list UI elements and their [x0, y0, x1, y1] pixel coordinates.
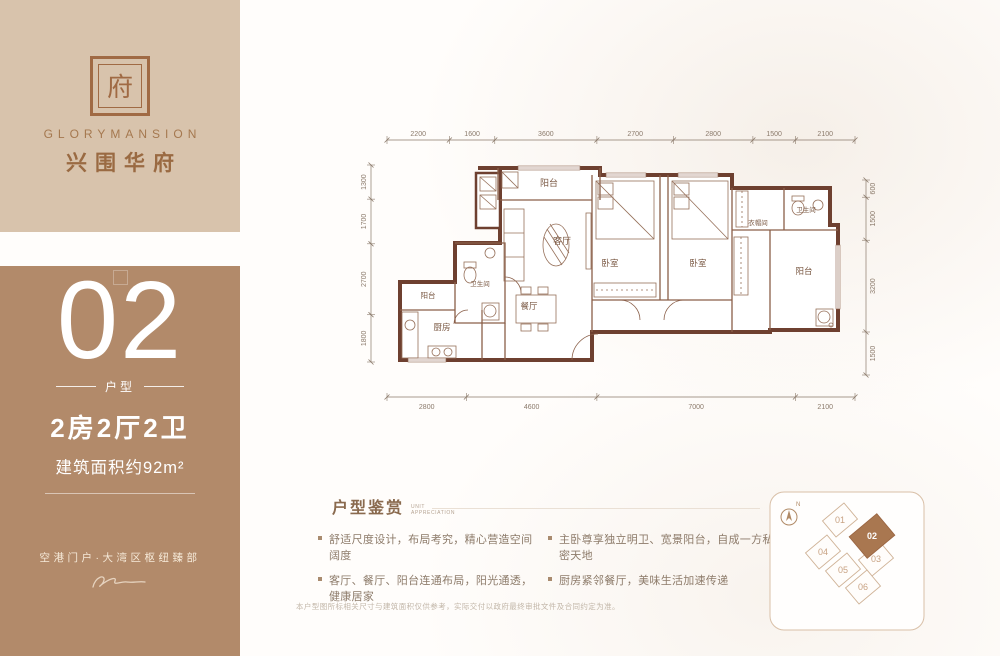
- room-label: 客厅: [553, 235, 571, 246]
- bullet-square-icon: [548, 536, 552, 540]
- brand-seal-inner: 府: [98, 64, 142, 108]
- appreciation-subtitle-line1: UNIT: [411, 504, 425, 510]
- feature-list-left: 舒适尺度设计，布局考究，精心营造空间阔度客厅、餐厅、阳台连通布局，阳光通透，健康…: [318, 531, 543, 604]
- room-label: 卧室: [689, 258, 707, 268]
- unit-panel: 02 户型 2房2厅2卫 建筑面积约92m² 空港门户·大湾区枢纽臻部: [0, 266, 240, 656]
- appreciation-subtitle-en: UNIT APPRECIATION: [411, 504, 455, 517]
- feature-bullet-text: 主卧尊享独立明卫、宽景阳台，自成一方私密天地: [559, 531, 778, 563]
- watermark-seal-icon: [113, 270, 128, 285]
- feature-bullet: 客厅、餐厅、阳台连通布局，阳光通透，健康居家: [318, 572, 543, 604]
- feature-bullet: 舒适尺度设计，布局考究，精心营造空间阔度: [318, 531, 543, 563]
- dimension-label: 600: [870, 183, 877, 195]
- sidebar: 府 GLORYMANSION 兴围华府 02 户型 2房2厅2卫 建筑面积约92…: [0, 0, 240, 656]
- room-label: 卫生间: [470, 279, 490, 288]
- room-label: 卫生间: [796, 205, 816, 214]
- dimension-label: 4600: [524, 404, 540, 411]
- dimension-label: 1500: [870, 346, 877, 362]
- dimension-label: 2700: [627, 131, 643, 138]
- floorplan-diagram: 阳台客厅卧室卧室衣帽间卫生间阳台卫生间阳台厨房餐厅 22001600360027…: [350, 125, 880, 425]
- room-label: 厨房: [433, 322, 450, 332]
- dimension-label: 2700: [361, 271, 368, 287]
- appreciation-title: 户型鉴赏: [332, 494, 404, 518]
- unit-tag-label: 户型: [105, 378, 135, 395]
- room-label: 阳台: [540, 177, 558, 188]
- dimension-label: 2200: [410, 131, 426, 138]
- brochure-page: 府 GLORYMANSION 兴围华府 02 户型 2房2厅2卫 建筑面积约92…: [0, 0, 1000, 656]
- disclaimer-text: 本户型图所标相关尺寸与建筑面积仅供参考，实际交付以政府最终审批文件及合同约定为准…: [296, 601, 620, 612]
- room-label: 阳台: [795, 266, 812, 276]
- feature-bullet-text: 厨房紧邻餐厅，美味生活加速传递: [559, 572, 729, 588]
- compass-north-label: N: [796, 502, 800, 508]
- unit-tag-row: 户型: [0, 378, 240, 395]
- room-label: 卧室: [601, 258, 619, 268]
- floorplan-walls: [400, 166, 840, 362]
- dimension-label: 3200: [870, 278, 877, 294]
- dimension-label: 1500: [766, 131, 782, 138]
- appreciation-header: 户型鉴赏 UNIT APPRECIATION: [332, 494, 455, 518]
- dimension-label: 1600: [464, 131, 480, 138]
- feature-bullet: 厨房紧邻餐厅，美味生活加速传递: [548, 572, 778, 588]
- dimension-label: 3600: [538, 131, 554, 138]
- bullet-square-icon: [548, 577, 552, 581]
- brand-name-cn: 兴围华府: [58, 147, 182, 177]
- keyplan-diagram: N 010304050602: [768, 490, 926, 632]
- keyplan-unit-label: 02: [867, 531, 877, 541]
- room-label: 阳台: [421, 290, 436, 300]
- feature-bullet-text: 舒适尺度设计，布局考究，精心营造空间阔度: [329, 531, 543, 563]
- dimension-label: 2100: [817, 131, 833, 138]
- divider-line: [45, 493, 195, 494]
- dimension-label: 2800: [419, 404, 435, 411]
- room-label: 餐厅: [520, 301, 538, 311]
- bullet-square-icon: [318, 577, 322, 581]
- dimension-label: 1500: [870, 211, 877, 227]
- unit-area-text: 建筑面积约92m²: [0, 454, 240, 478]
- appreciation-rule: [432, 508, 760, 509]
- brand-seal-character: 府: [107, 67, 133, 104]
- dimension-label: 1300: [361, 174, 368, 190]
- unit-layout-text: 2房2厅2卫: [0, 408, 240, 445]
- feature-bullet: 主卧尊享独立明卫、宽景阳台，自成一方私密天地: [548, 531, 778, 563]
- dimension-label: 7000: [688, 404, 704, 411]
- room-label: 衣帽间: [748, 218, 768, 227]
- keyplan-unit-label: 03: [871, 554, 881, 564]
- dimension-label: 2800: [705, 131, 721, 138]
- dimension-label: 1800: [361, 330, 368, 346]
- slogan-text: 空港门户·大湾区枢纽臻部: [0, 550, 240, 565]
- keyplan-unit-label: 04: [818, 547, 828, 557]
- bullet-square-icon: [318, 536, 322, 540]
- appreciation-subtitle-line2: APPRECIATION: [411, 510, 455, 516]
- signature-scribble: [75, 571, 165, 593]
- tag-line-left: [56, 386, 96, 387]
- tag-line-right: [144, 386, 184, 387]
- feature-list-right: 主卧尊享独立明卫、宽景阳台，自成一方私密天地厨房紧邻餐厅，美味生活加速传递: [548, 531, 778, 588]
- keyplan-unit-label: 05: [838, 565, 848, 575]
- feature-bullet-text: 客厅、餐厅、阳台连通布局，阳光通透，健康居家: [329, 572, 543, 604]
- brand-seal-icon: 府: [90, 56, 150, 116]
- brand-name-en: GLORYMANSION: [39, 127, 202, 141]
- dimension-label: 1700: [361, 214, 368, 230]
- dimension-label: 2100: [817, 404, 833, 411]
- keyplan-unit-label: 06: [858, 582, 868, 592]
- brand-panel: 府 GLORYMANSION 兴围华府: [0, 0, 240, 232]
- keyplan-unit-label: 01: [835, 515, 845, 525]
